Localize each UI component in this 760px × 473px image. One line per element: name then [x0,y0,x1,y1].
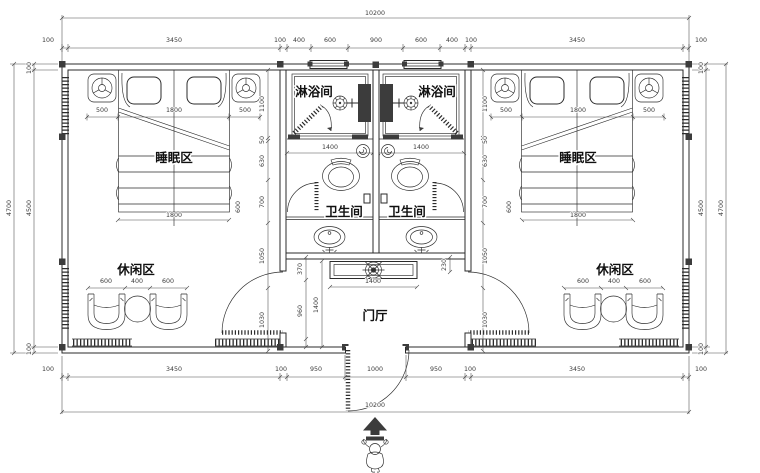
floor-plan-page: 10200 100 3450 100 400 600 900 600 400 1… [0,0,760,473]
column [373,62,380,69]
dim-label: 370 [297,263,304,275]
dim-label: 1400 [413,144,429,151]
dim-label: 4700 [6,200,13,216]
dim-label: 100 [465,37,477,44]
dim-label: 10200 [365,402,385,409]
dim-label: 1400 [322,144,338,151]
room-label-sleep-right: 睡眠区 [559,150,597,165]
dim-label: 600 [577,278,589,285]
dim-label: 50 [482,136,489,144]
dim-label: 100 [274,37,286,44]
dim-label: 1800 [570,212,586,219]
dim-left-lines [10,64,58,353]
dim-label: 600 [100,278,112,285]
room-label-foyer: 门厅 [362,308,388,323]
dim-label: 400 [446,37,458,44]
center-wall [373,70,379,253]
dim-console [328,285,419,289]
dimension-lines [10,15,728,414]
dim-label: 100 [42,366,54,373]
dim-label: 1800 [570,107,586,114]
dim-label: 100 [695,366,707,373]
floor-plan-canvas: 10200 100 3450 100 400 600 900 600 400 1… [0,0,760,473]
room-label-shower-left: 淋浴间 [295,84,333,99]
dim-label: 1050 [482,248,489,264]
dim-label: 600 [639,278,651,285]
room-label-shower-right: 淋浴间 [418,84,456,99]
dim-label: 630 [482,155,489,167]
entrance-opening [346,346,406,354]
dim-label: 900 [370,37,382,44]
dim-label: 1100 [259,96,266,112]
dim-label: 600 [162,278,174,285]
room-label-leisure-right: 休闲区 [595,262,634,277]
dim-label: 50 [259,136,266,144]
dim-label: 100 [698,343,705,355]
dim-label: 4500 [26,200,33,216]
dim-label: 630 [259,155,266,167]
dim-label: 960 [297,305,304,317]
dim-label: 100 [42,37,54,44]
dim-label: 3450 [569,366,585,373]
room-label-leisure-left: 休闲区 [116,262,155,277]
entrance-arrow-base [366,437,384,441]
dim-label: 700 [482,196,489,208]
dim-label: 600 [235,201,242,213]
room-label-sleep-left: 睡眠区 [155,150,193,165]
room-label-toilet-right: 卫生间 [388,204,426,219]
dim-label: 1800 [166,212,182,219]
dim-label: 3450 [569,37,585,44]
dim-label: 230 [441,259,448,271]
dim-label: 3450 [166,37,182,44]
dim-label: 100 [698,62,705,74]
entrance-arrow-icon [363,417,387,435]
center-core [286,62,465,412]
dim-label: 500 [500,107,512,114]
dim-label: 100 [26,62,33,74]
dim-label: 700 [259,196,266,208]
dim-label: 100 [464,366,476,373]
dim-label: 400 [608,278,620,285]
dim-label: 100 [26,343,33,355]
dim-label: 950 [430,366,442,373]
dim-label: 600 [324,37,336,44]
dim-label: 100 [275,366,287,373]
dim-label: 10200 [365,10,385,17]
dim-label: 600 [415,37,427,44]
dim-label: 1400 [365,278,381,285]
person-figure-icon [362,439,388,472]
dim-label: 4500 [698,200,705,216]
room-label-toilet-left: 卫生间 [325,204,363,219]
entrance-marker [362,417,388,472]
dim-label: 100 [695,37,707,44]
dim-label: 400 [293,37,305,44]
dim-top-chain [62,44,689,52]
dim-label: 1100 [482,96,489,112]
dim-label: 1030 [482,312,489,328]
dim-label: 500 [239,107,251,114]
dim-label: 400 [131,278,143,285]
dim-label: 1800 [166,107,182,114]
dim-label: 500 [96,107,108,114]
dim-label: 1050 [259,248,266,264]
dim-label: 500 [643,107,655,114]
dim-label: 600 [506,201,513,213]
dim-label: 1000 [367,366,383,373]
dim-label: 4700 [718,200,725,216]
dim-label: 3450 [166,366,182,373]
foyer-wall [286,253,465,259]
dim-label: 1030 [259,312,266,328]
dim-label: 1400 [313,297,320,313]
dim-label: 950 [310,366,322,373]
